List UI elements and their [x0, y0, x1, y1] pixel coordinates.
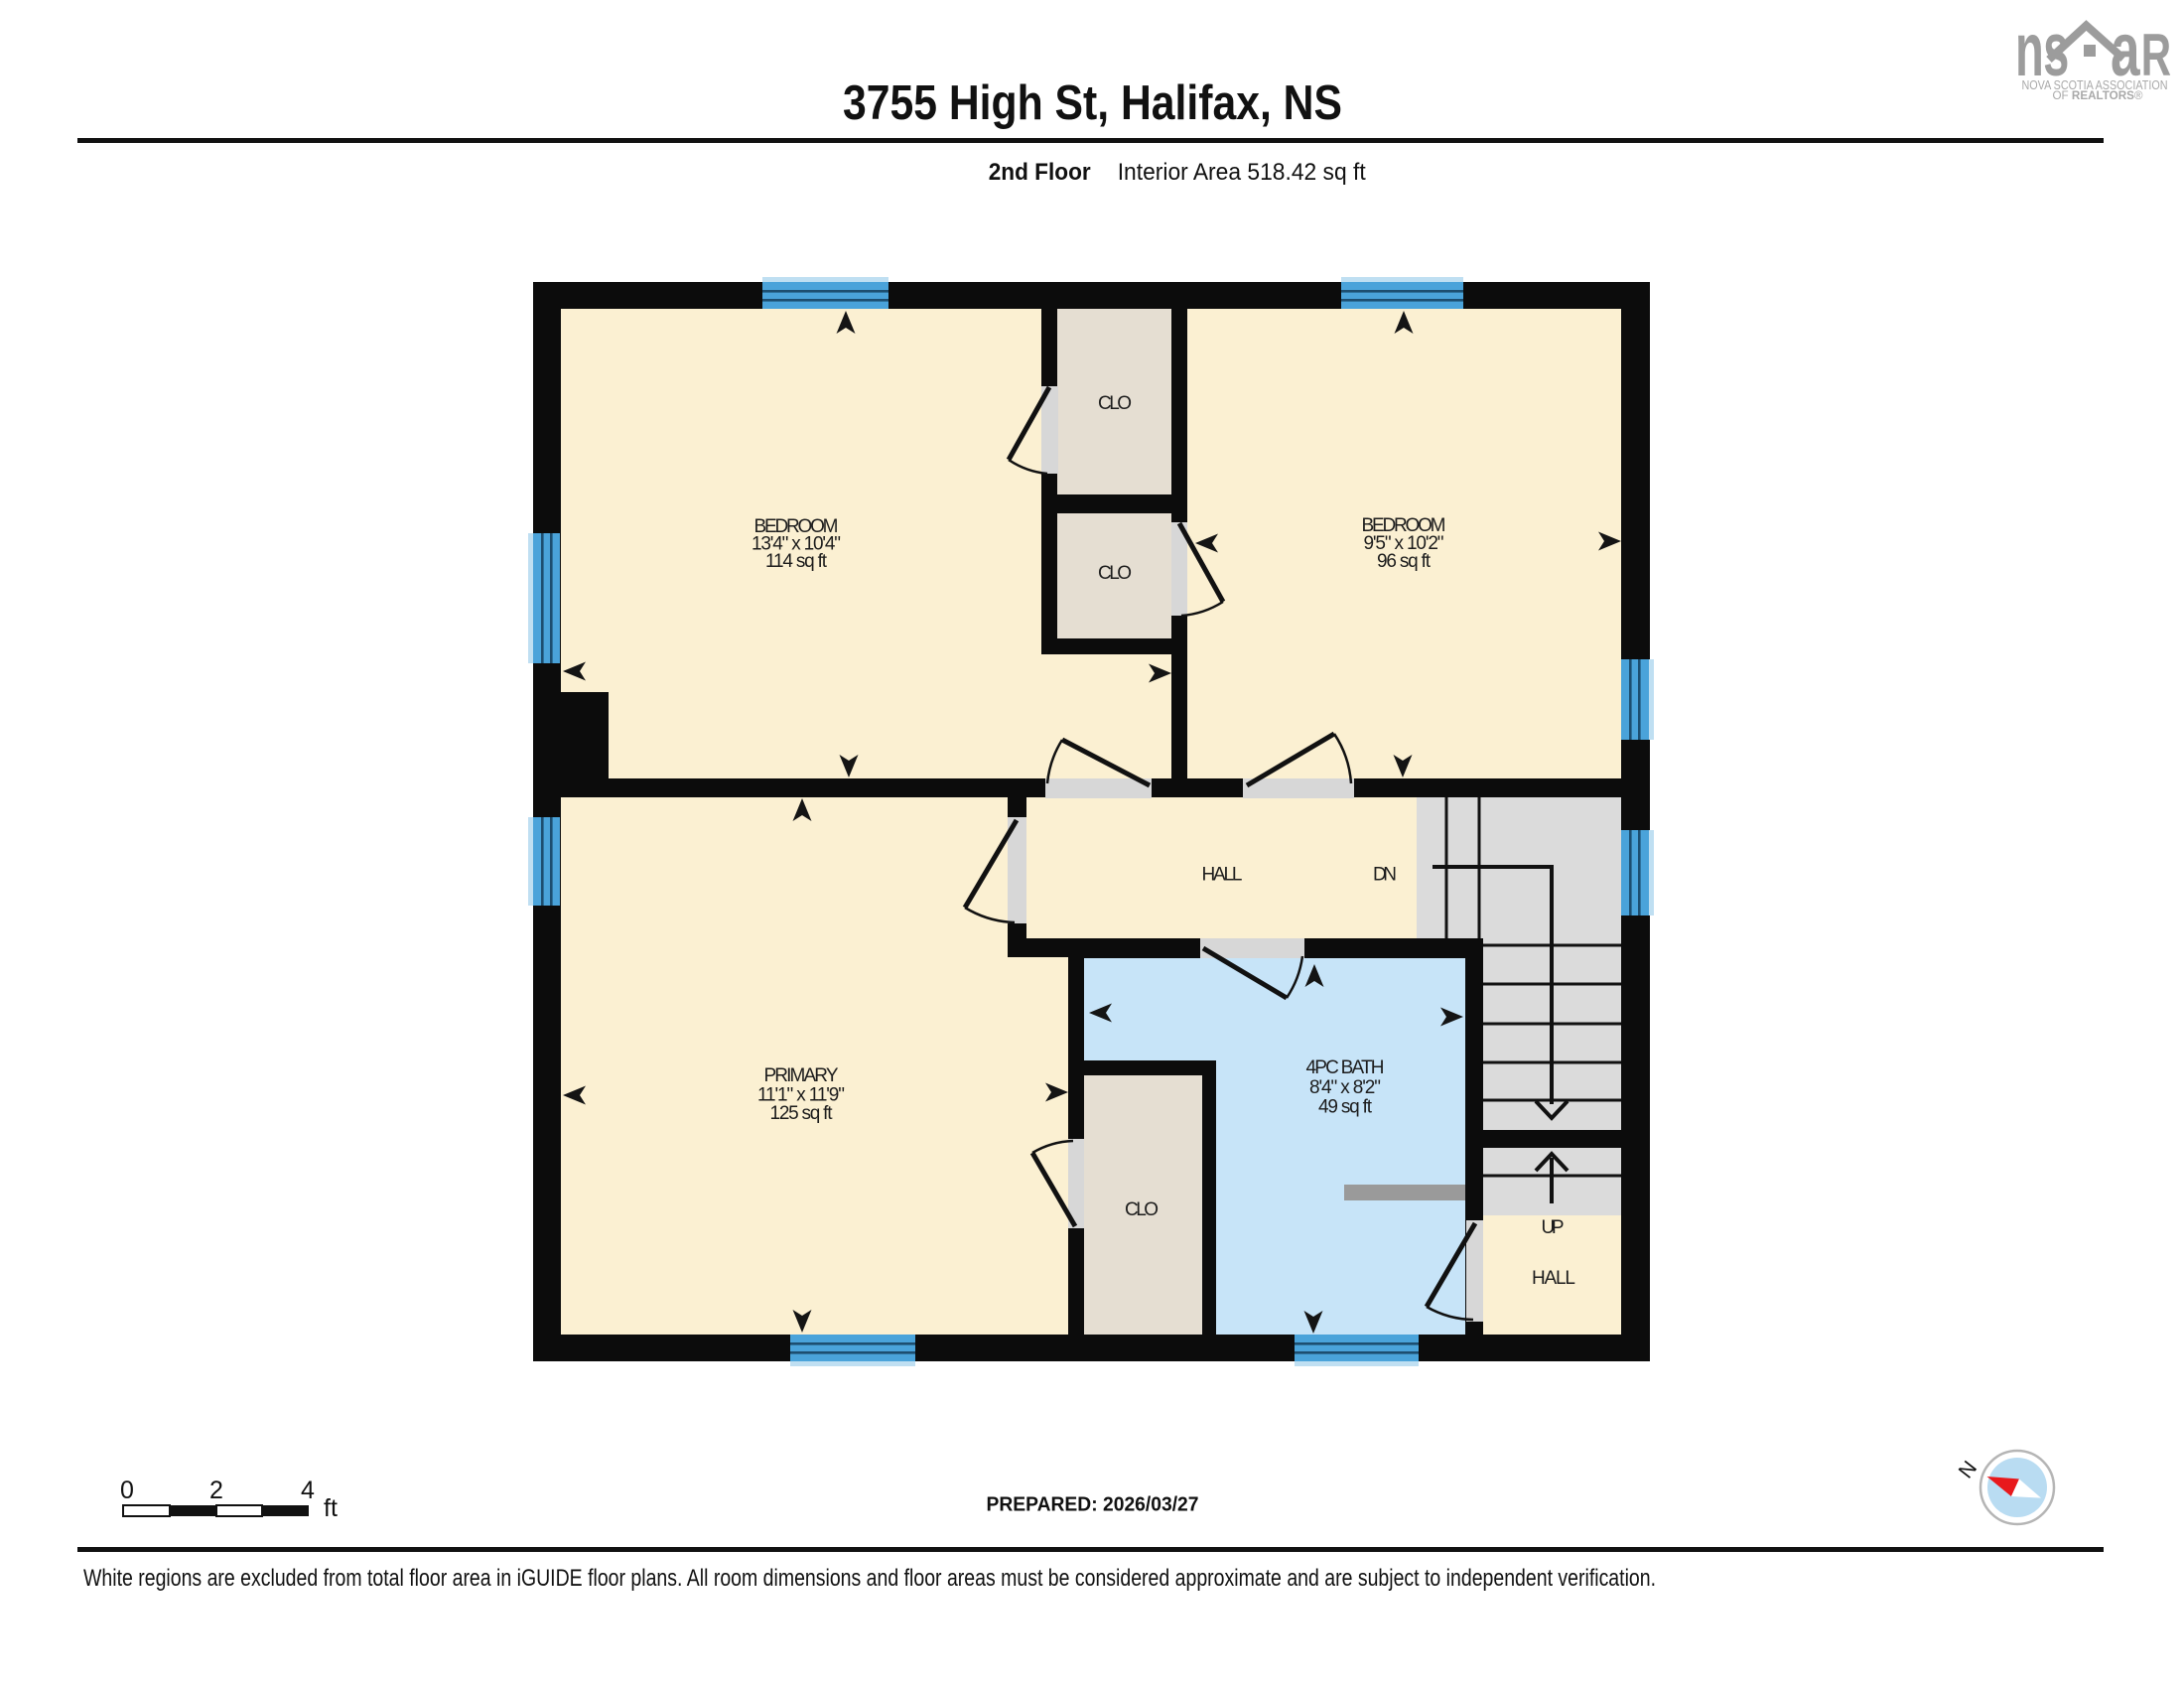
svg-text:CLO: CLO — [1098, 563, 1132, 584]
svg-text:CLO: CLO — [1098, 393, 1132, 414]
svg-text:UP: UP — [1542, 1217, 1565, 1238]
svg-text:PRIMARY: PRIMARY — [764, 1065, 839, 1086]
svg-text:OF REALTORS®: OF REALTORS® — [2053, 88, 2143, 102]
svg-text:White regions are excluded fro: White regions are excluded from total fl… — [83, 1565, 1656, 1592]
svg-text:ft: ft — [324, 1494, 338, 1522]
svg-text:96 sq ft: 96 sq ft — [1377, 551, 1432, 572]
svg-text:4: 4 — [301, 1477, 315, 1504]
svg-text:8'4" x 8'2": 8'4" x 8'2" — [1309, 1077, 1381, 1098]
svg-text:PREPARED: 2026/03/27: PREPARED: 2026/03/27 — [987, 1494, 1199, 1516]
svg-text:Interior Area 518.42 sq ft: Interior Area 518.42 sq ft — [1118, 159, 1366, 186]
svg-text:2nd Floor: 2nd Floor — [989, 159, 1091, 186]
svg-text:4PC BATH: 4PC BATH — [1306, 1057, 1385, 1078]
svg-text:114 sq ft: 114 sq ft — [765, 551, 828, 572]
svg-text:N: N — [1955, 1457, 1981, 1482]
svg-text:125 sq ft: 125 sq ft — [770, 1103, 834, 1124]
svg-text:HALL: HALL — [1532, 1268, 1575, 1289]
svg-text:DN: DN — [1373, 865, 1397, 886]
svg-text:CLO: CLO — [1125, 1199, 1159, 1220]
svg-text:2: 2 — [209, 1477, 223, 1504]
svg-text:0: 0 — [120, 1477, 134, 1504]
svg-text:HALL: HALL — [1202, 865, 1243, 886]
svg-text:49 sq ft: 49 sq ft — [1318, 1097, 1373, 1118]
svg-text:3755 High St, Halifax, NS: 3755 High St, Halifax, NS — [843, 76, 1342, 130]
